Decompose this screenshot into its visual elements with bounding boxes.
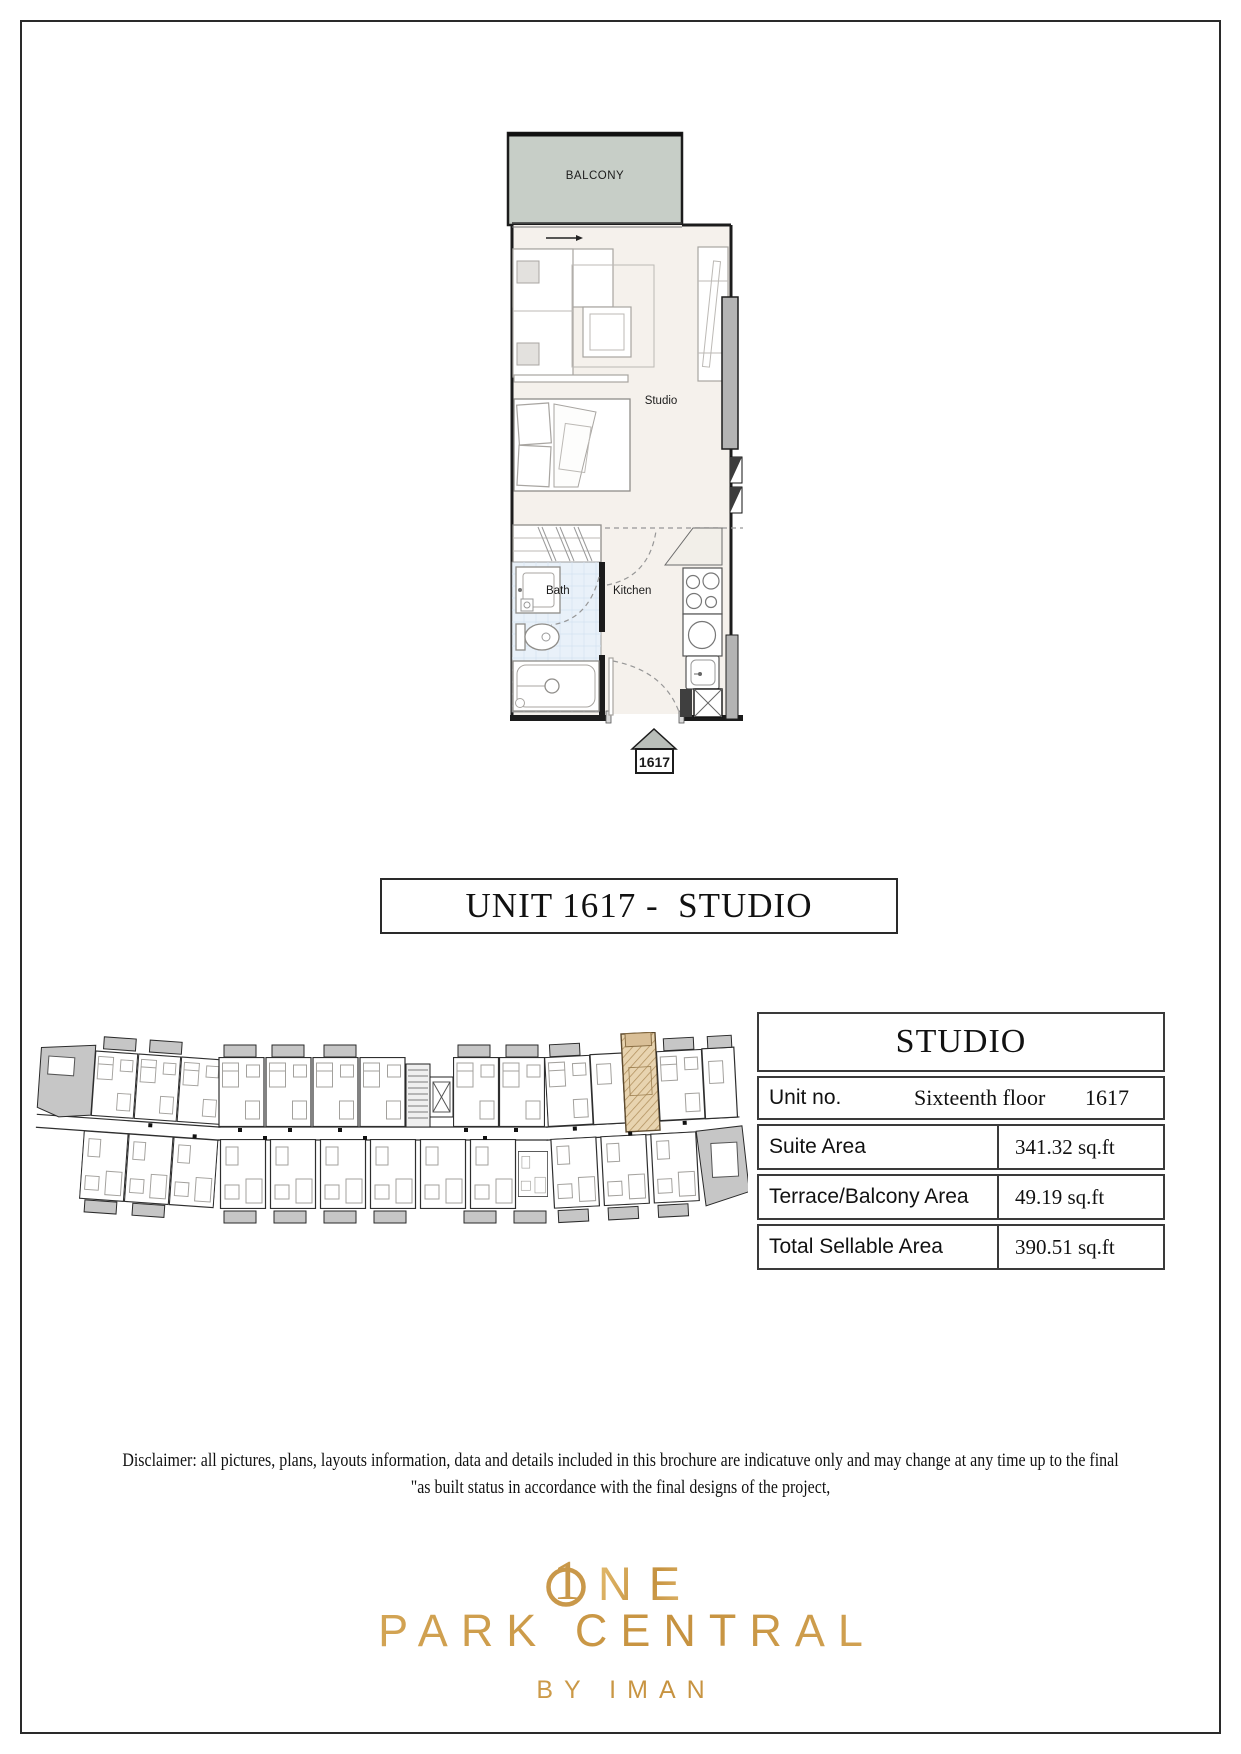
ac-panel xyxy=(722,297,738,449)
highlighted-unit xyxy=(621,1032,660,1132)
unit-title-banner: UNIT 1617 - STUDIO xyxy=(380,878,898,934)
bath-label: Bath xyxy=(546,585,570,597)
logo-byline: BY IMAN xyxy=(0,1676,1241,1705)
table-header: STUDIO xyxy=(757,1012,1165,1072)
unit-tag-label: 1617 xyxy=(639,754,670,770)
plate-left-wing xyxy=(30,1033,226,1221)
row-label: Terrace/Balcony Area xyxy=(769,1176,969,1218)
table-row-unit-no: Unit no. Sixteenth floor 1617 xyxy=(757,1076,1165,1120)
kitchen-label: Kitchen xyxy=(613,585,651,597)
console-shelf xyxy=(514,375,628,382)
logo-name: PARK CENTRAL xyxy=(0,1605,1241,1657)
disclaimer-line-2: "as built status in accordance with the … xyxy=(99,1474,1141,1501)
balcony: BALCONY xyxy=(508,133,682,225)
logo-one-row: 1 NE xyxy=(0,1527,1241,1607)
table-row-terrace-area: Terrace/Balcony Area 49.19 sq.ft xyxy=(757,1174,1165,1220)
brochure-page: BALCONY xyxy=(0,0,1241,1754)
stairs-core xyxy=(406,1064,430,1127)
building-floor-plate xyxy=(28,1032,748,1237)
wardrobe xyxy=(513,525,601,563)
row-value: 341.32 sq.ft xyxy=(1015,1126,1115,1168)
elevator-core xyxy=(430,1077,453,1117)
column-divider xyxy=(997,1126,999,1168)
row-label: Total Sellable Area xyxy=(769,1226,943,1268)
bed xyxy=(514,399,630,491)
logo-one-letters: NE xyxy=(598,1560,697,1607)
disclaimer-line-1: Disclaimer: all pictures, plans, layouts… xyxy=(99,1447,1141,1474)
unit-floor-plan: BALCONY xyxy=(450,115,770,775)
balcony-label: BALCONY xyxy=(566,170,624,182)
table-row-suite-area: Suite Area 341.32 sq.ft xyxy=(757,1124,1165,1170)
coffee-table xyxy=(583,307,631,357)
column-divider xyxy=(997,1176,999,1218)
unit-number-tag: 1617 xyxy=(632,729,676,773)
logo-numeral: 1 xyxy=(553,1550,581,1607)
one-circle-logo-icon: 1 xyxy=(544,1529,588,1607)
row-value: 390.51 sq.ft xyxy=(1015,1226,1115,1268)
plate-middle xyxy=(218,1045,548,1223)
unit-details-table: STUDIO Unit no. Sixteenth floor 1617 Sui… xyxy=(757,1012,1165,1274)
unit-no-label: Unit no. xyxy=(769,1078,841,1118)
unit-number: 1617 xyxy=(1085,1078,1129,1118)
plate-right-wing xyxy=(541,1032,748,1223)
table-row-total-area: Total Sellable Area 390.51 sq.ft xyxy=(757,1224,1165,1270)
column-divider xyxy=(997,1226,999,1268)
row-label: Suite Area xyxy=(769,1126,866,1168)
disclaimer: Disclaimer: all pictures, plans, layouts… xyxy=(0,1447,1241,1501)
row-value: 49.19 sq.ft xyxy=(1015,1176,1104,1218)
floor-name: Sixteenth floor xyxy=(914,1078,1045,1118)
bath: Bath xyxy=(512,562,605,719)
studio-label: Studio xyxy=(645,395,678,407)
